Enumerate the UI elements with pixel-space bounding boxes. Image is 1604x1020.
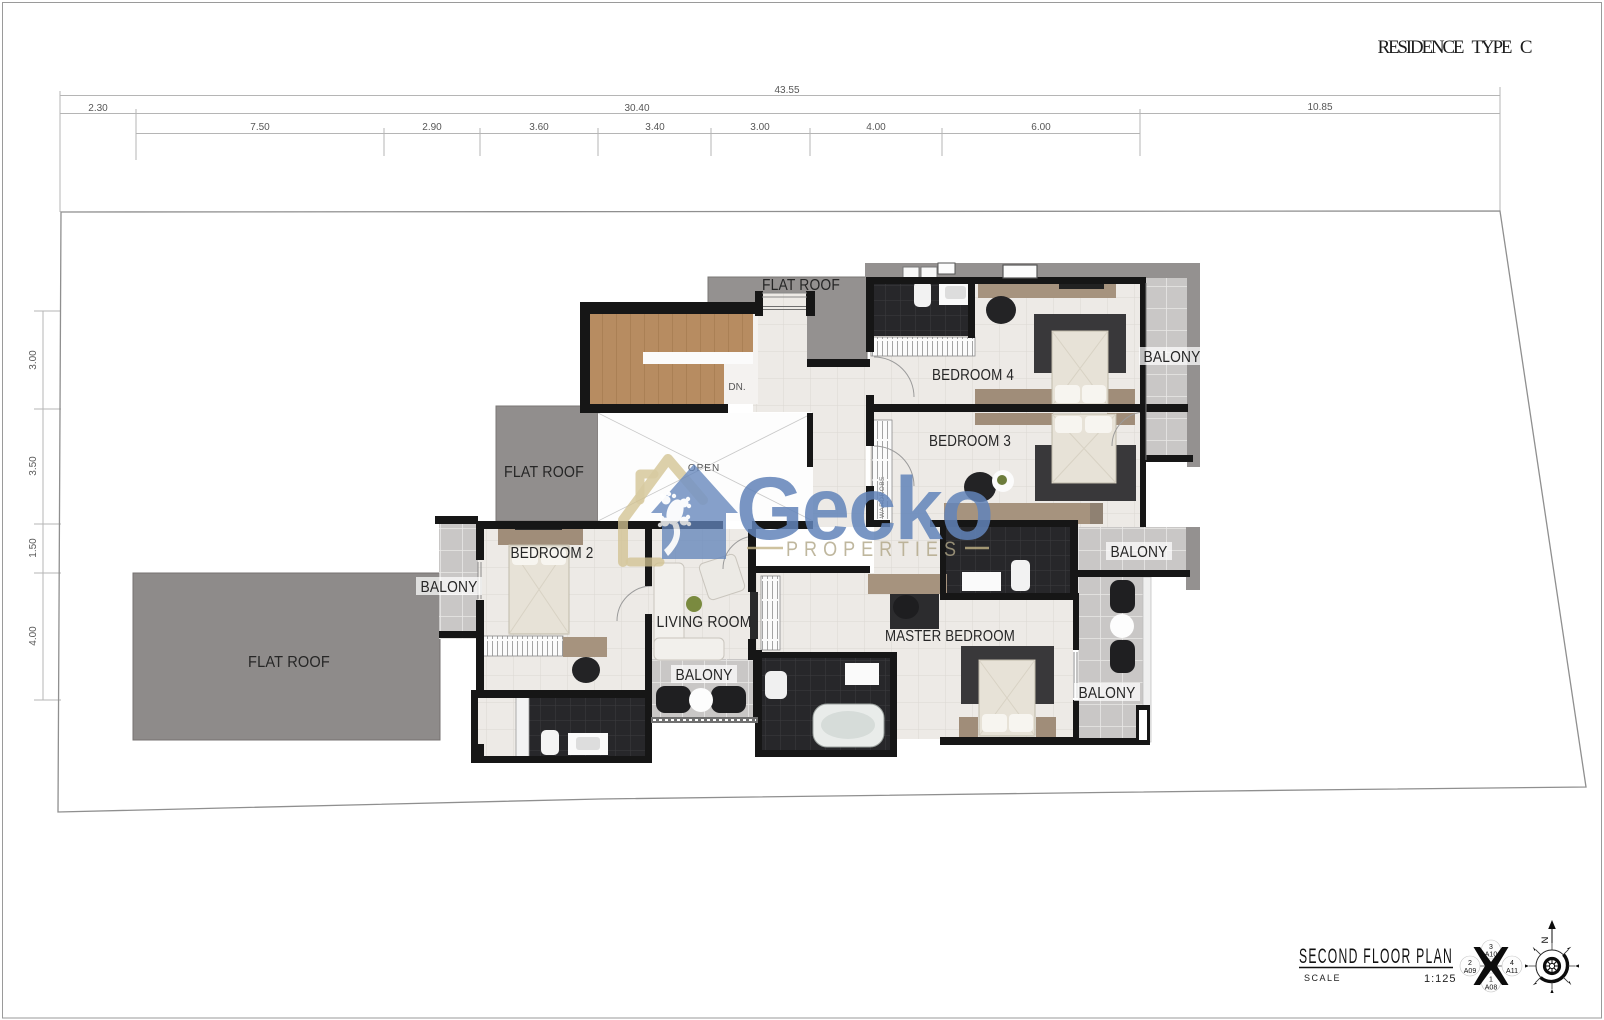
- svg-text:3: 3: [1489, 944, 1493, 951]
- svg-text:MASTER BEDROOM: MASTER BEDROOM: [885, 628, 1015, 645]
- svg-text:BEDROOM 2: BEDROOM 2: [511, 545, 594, 562]
- svg-text:43.55: 43.55: [774, 85, 799, 96]
- svg-text:A11: A11: [1506, 968, 1518, 975]
- svg-text:SECOND FLOOR PLAN: SECOND FLOOR PLAN: [1299, 945, 1453, 968]
- svg-text:2.30: 2.30: [88, 103, 108, 114]
- svg-text:BALONY: BALONY: [676, 667, 733, 684]
- svg-text:DN.: DN.: [728, 382, 745, 393]
- svg-text:4: 4: [1510, 960, 1514, 967]
- svg-text:N: N: [1540, 936, 1551, 943]
- svg-text:2.90: 2.90: [422, 122, 442, 133]
- svg-text:3.00: 3.00: [28, 350, 39, 370]
- svg-text:A09: A09: [1464, 968, 1477, 975]
- svg-text:3.60: 3.60: [529, 122, 549, 133]
- svg-text:2: 2: [1468, 960, 1472, 967]
- svg-text:3.50: 3.50: [28, 456, 39, 476]
- svg-text:4.00: 4.00: [866, 122, 886, 133]
- svg-text:BALONY: BALONY: [1144, 349, 1201, 366]
- svg-text:SCALE: SCALE: [1304, 973, 1341, 983]
- svg-text:BEDROOM 4: BEDROOM 4: [932, 367, 1014, 384]
- svg-text:A08: A08: [1485, 985, 1498, 992]
- svg-text:1:125: 1:125: [1424, 973, 1457, 985]
- svg-text:3.00: 3.00: [750, 122, 770, 133]
- svg-text:7.50: 7.50: [250, 122, 270, 133]
- svg-text:6.00: 6.00: [1031, 122, 1051, 133]
- svg-text:BALONY: BALONY: [421, 579, 478, 596]
- svg-text:1.50: 1.50: [28, 538, 39, 558]
- svg-text:FLAT ROOF: FLAT ROOF: [504, 464, 584, 481]
- svg-text:BEDROOM 3: BEDROOM 3: [929, 433, 1011, 450]
- svg-text:1: 1: [1489, 977, 1493, 984]
- svg-text:30.40: 30.40: [624, 103, 649, 114]
- svg-text:BALONY: BALONY: [1111, 544, 1168, 561]
- svg-text:PROPERTIES: PROPERTIES: [786, 538, 962, 561]
- svg-text:3.40: 3.40: [645, 122, 665, 133]
- svg-text:FLAT ROOF: FLAT ROOF: [248, 654, 330, 671]
- svg-text:FLAT ROOF: FLAT ROOF: [762, 277, 840, 294]
- svg-text:BALONY: BALONY: [1079, 685, 1136, 702]
- svg-text:RESIDENCE TYPE C: RESIDENCE TYPE C: [1378, 37, 1533, 58]
- svg-text:4.00: 4.00: [28, 626, 39, 646]
- svg-text:10.85: 10.85: [1307, 102, 1332, 113]
- svg-text:A10: A10: [1485, 952, 1498, 959]
- svg-text:LIVING ROOM: LIVING ROOM: [657, 614, 752, 631]
